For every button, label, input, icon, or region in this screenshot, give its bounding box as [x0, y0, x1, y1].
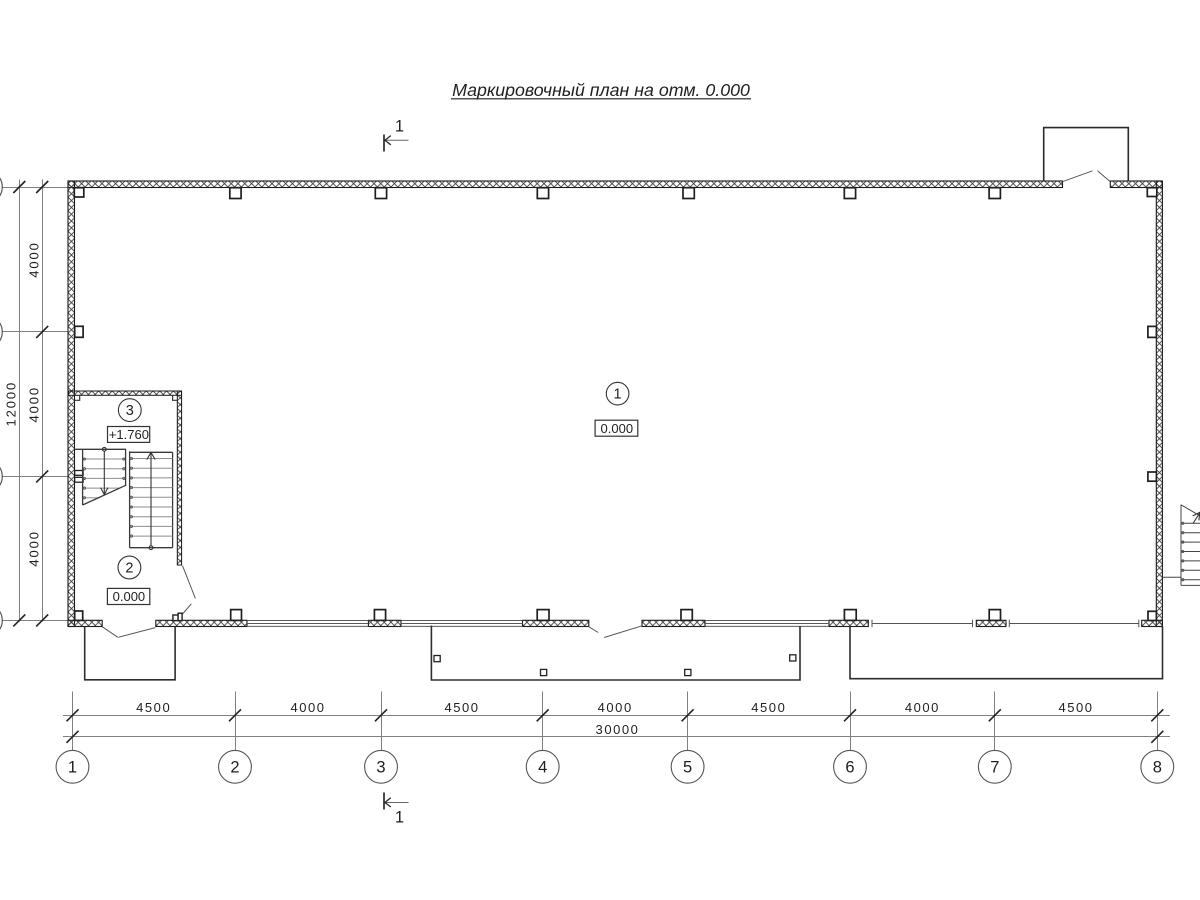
svg-text:4500: 4500 [1058, 700, 1093, 715]
svg-text:4: 4 [538, 759, 547, 777]
svg-text:4500: 4500 [444, 700, 479, 715]
svg-text:4000: 4000 [26, 530, 41, 567]
svg-text:0.000: 0.000 [113, 589, 146, 604]
svg-text:3: 3 [376, 759, 385, 777]
svg-text:30000: 30000 [596, 722, 640, 737]
svg-text:+1.760: +1.760 [109, 427, 149, 442]
svg-text:4000: 4000 [26, 386, 41, 423]
svg-text:5: 5 [683, 759, 692, 777]
svg-text:7: 7 [990, 759, 999, 777]
svg-text:1: 1 [395, 118, 404, 136]
svg-text:4000: 4000 [290, 700, 325, 715]
svg-text:4500: 4500 [751, 700, 786, 715]
svg-text:4500: 4500 [136, 700, 171, 715]
svg-text:6: 6 [845, 759, 854, 777]
svg-text:8: 8 [1153, 759, 1162, 777]
svg-text:3: 3 [126, 403, 134, 419]
svg-text:0.000: 0.000 [601, 421, 634, 436]
svg-text:1: 1 [614, 387, 622, 403]
svg-text:2: 2 [230, 759, 239, 777]
svg-text:1: 1 [68, 759, 77, 777]
svg-text:4000: 4000 [26, 241, 41, 278]
svg-text:4000: 4000 [905, 700, 940, 715]
svg-text:12000: 12000 [3, 381, 18, 427]
svg-text:1: 1 [395, 808, 404, 826]
svg-text:2: 2 [125, 561, 133, 577]
svg-text:4000: 4000 [598, 700, 633, 715]
svg-text:Маркировочный план на отм. 0.0: Маркировочный план на отм. 0.000 [452, 80, 750, 100]
